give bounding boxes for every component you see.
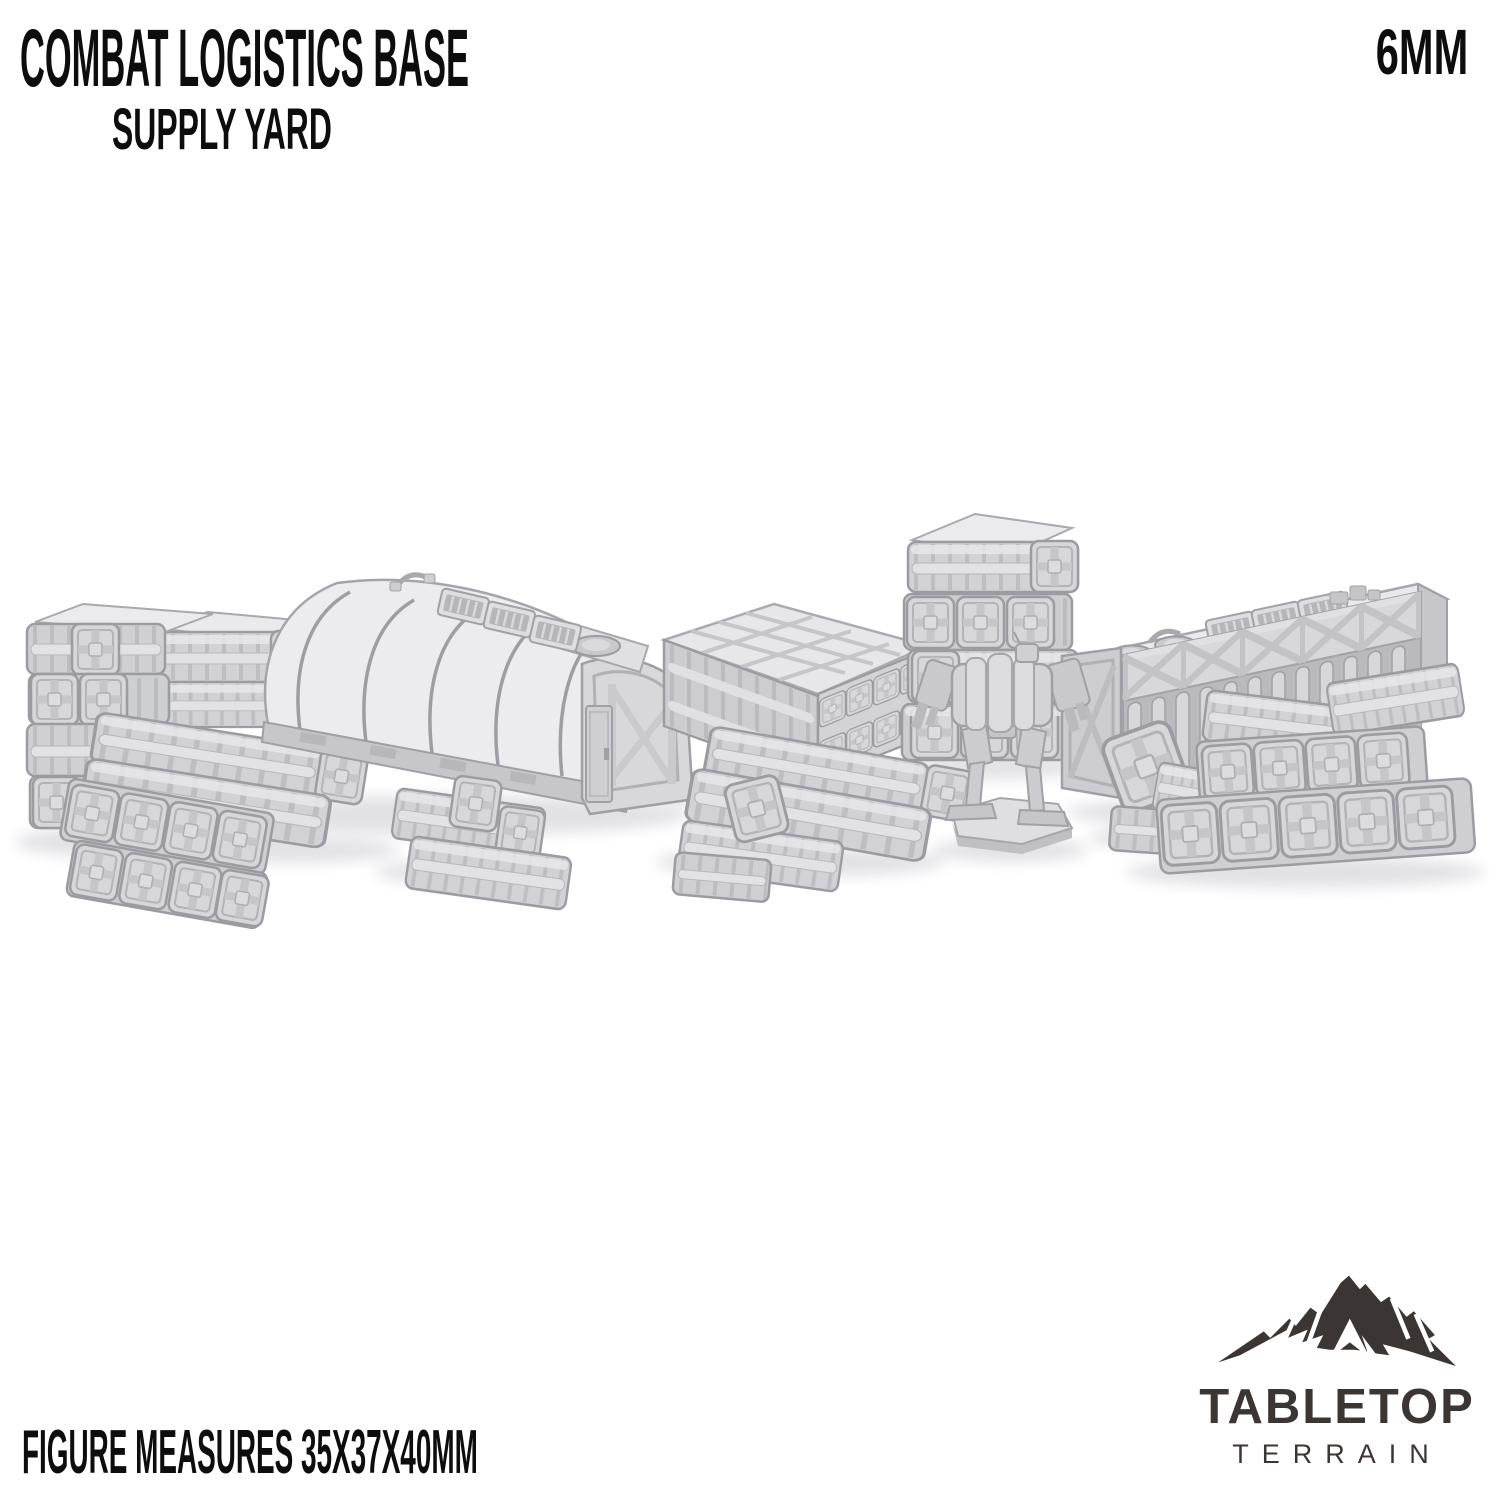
product-image: COMBAT LOGISTICS BASE SUPPLY YARD 6MM: [0, 0, 1500, 1500]
brand-wordmark: TABLETOP: [1194, 1381, 1480, 1435]
brand-logo: TABLETOP TERRAIN: [1194, 1271, 1480, 1470]
hut-door: [586, 706, 612, 802]
mech-torso-armor: [966, 654, 1034, 732]
brand-wordmark-sub: TERRAIN: [1194, 1438, 1480, 1470]
mountain-icon: [1201, 1271, 1473, 1379]
figure-measurement-note: FIGURE MEASURES 35X37X40MM: [22, 1422, 478, 1484]
